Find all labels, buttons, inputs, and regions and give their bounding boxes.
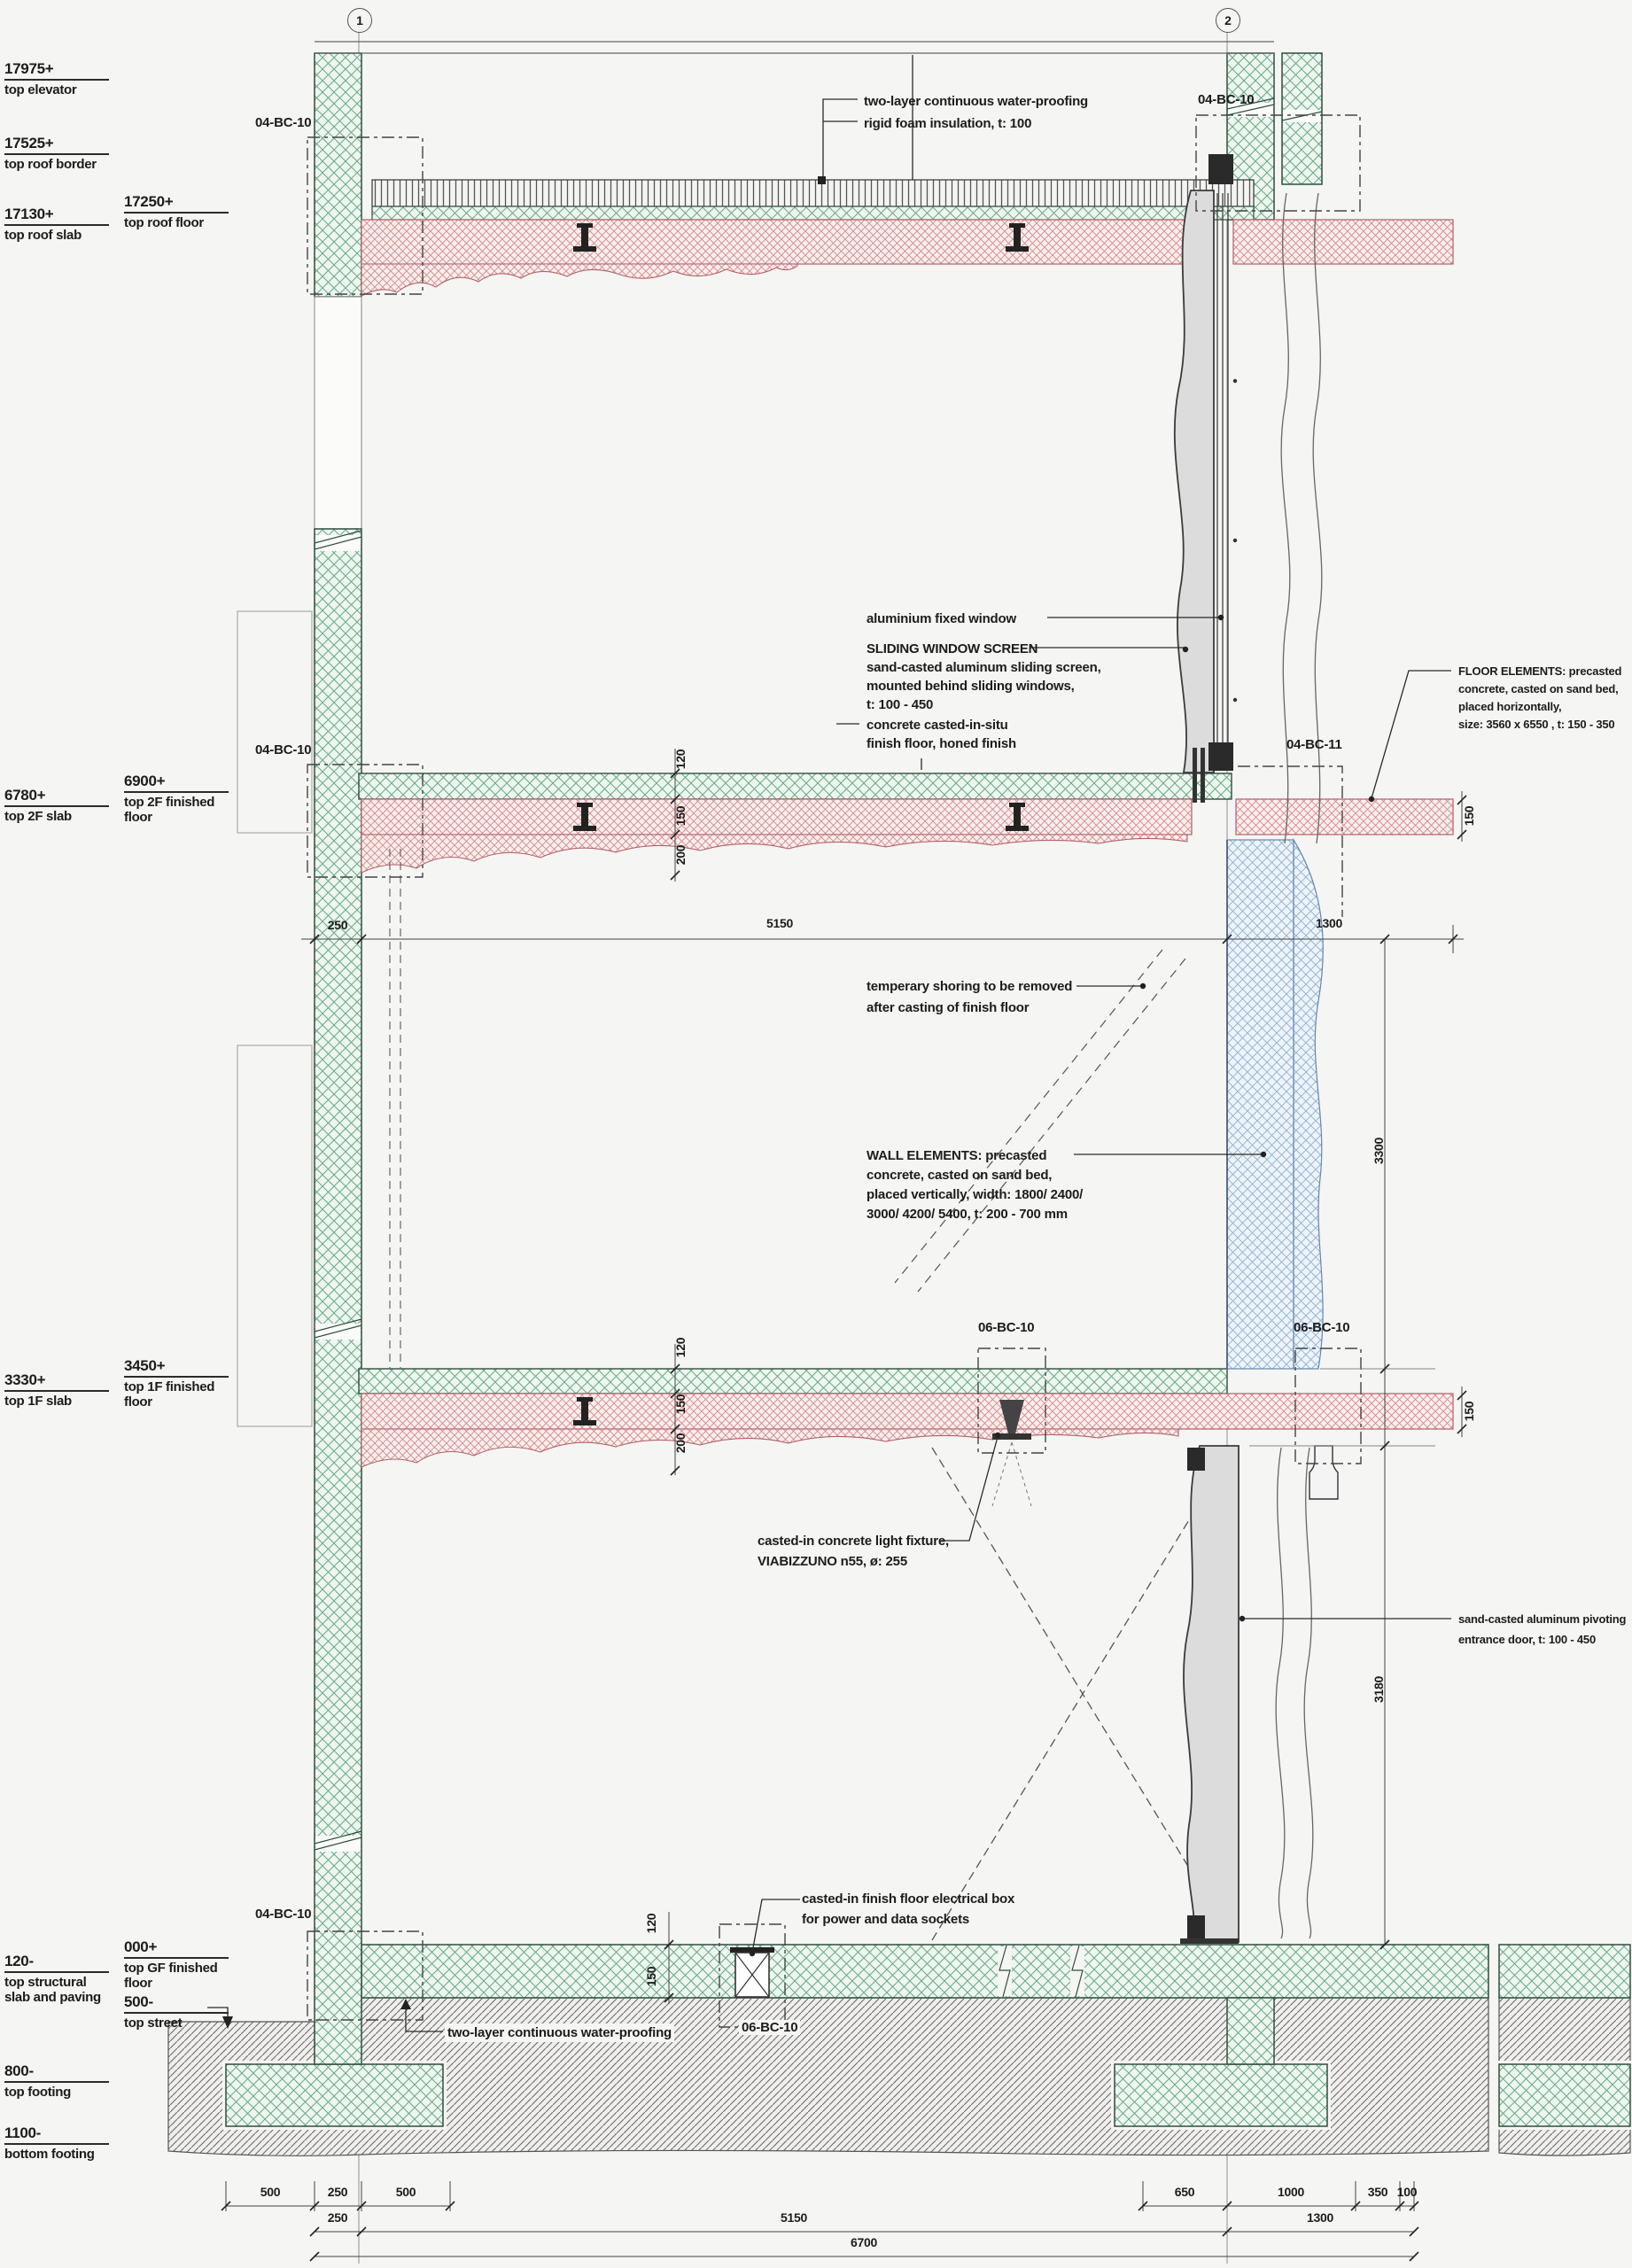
dim-1300-bottom: 1300 (1294, 2210, 1347, 2225)
level-bottom-footing: 1100-bottom footing (4, 2124, 111, 2162)
elevator-roof-lines (315, 42, 1274, 53)
annotation-wall-elements: WALL ELEMENTS: precasted concrete, caste… (867, 1146, 1083, 1224)
dim-5150-bottom: 5150 (767, 2210, 820, 2225)
dim-500-footing-left: 500 (244, 2185, 297, 2199)
shoring-and-outlines (237, 611, 1185, 1426)
dim-150-1f-edge: 150 (1462, 1391, 1476, 1432)
dim-3180-storey: 3180 (1372, 1669, 1386, 1710)
grid-bubble-1: 1 (347, 8, 372, 33)
level-top-2f-slab: 6780+top 2F slab (4, 787, 111, 824)
level-top-elevator: 17975+top elevator (4, 60, 111, 97)
columns (315, 53, 1322, 2064)
detail-ref-06-bc-10-1f-left: 06-BC-10 (978, 1320, 1034, 1335)
fixed-window-glazing (1217, 193, 1228, 771)
dim-150-2f: 150 (673, 796, 688, 836)
level-top-gf-finished: 000+top GF finished floor (124, 1938, 230, 1991)
dim-3300-storey: 3300 (1372, 1130, 1386, 1171)
level-top-roof-floor: 17250+top roof floor (124, 193, 230, 230)
dim-150-1f: 150 (673, 1384, 688, 1425)
level-top-2f-finished: 6900+top 2F finished floor (124, 773, 230, 825)
door-top-pivot (1187, 1448, 1205, 1471)
level-top-roof-border: 17525+top roof border (4, 135, 111, 172)
level-top-footing: 800-top footing (4, 2062, 111, 2100)
dim-250-bottom2: 250 (311, 2210, 364, 2225)
grid-lines (359, 31, 1227, 2264)
dim-650-bottom: 650 (1158, 2185, 1211, 2199)
dim-150-2f-edge: 150 (1462, 796, 1476, 836)
annotation-temporary-shoring: temperary shoring to be removed after ca… (867, 976, 1072, 1019)
level-top-1f-finished: 3450+top 1F finished floor (124, 1357, 230, 1410)
window-sill-fixing (1208, 742, 1233, 771)
dim-6700-bottom: 6700 (837, 2235, 890, 2249)
dim-1000-bottom: 1000 (1264, 2185, 1317, 2199)
roof-slab (361, 180, 1453, 296)
dim-500-footing-right: 500 (379, 2185, 432, 2199)
dim-120-gf: 120 (644, 1903, 658, 1944)
dim-1300-mid: 1300 (1302, 916, 1356, 930)
annotation-light-fixture: casted-in concrete light fixture, VIABIZ… (758, 1531, 949, 1572)
annotation-floor-elements: FLOOR ELEMENTS: precasted concrete, cast… (1458, 663, 1621, 734)
dim-250-mid: 250 (311, 918, 364, 932)
annotation-fixed-window: aluminium fixed window (867, 610, 1016, 628)
detail-ref-04-bc-10-gf: 04-BC-10 (255, 1907, 311, 1922)
door-bottom-pivot (1187, 1915, 1205, 1938)
dim-100-bottom: 100 (1380, 2185, 1434, 2199)
dim-150-gf: 150 (644, 1956, 658, 1997)
detail-ref-04-bc-10-roof-right: 04-BC-10 (1198, 92, 1254, 107)
dim-5150-mid: 5150 (753, 916, 806, 930)
annotation-sliding-window-screen: SLIDING WINDOW SCREEN sand-casted alumin… (867, 640, 1101, 714)
grid-bubbles (359, 8, 1227, 31)
dim-250-footing: 250 (311, 2185, 364, 2199)
dim-200-1f: 200 (673, 1423, 688, 1464)
level-top-street: 500-top street (124, 1993, 230, 2031)
annotation-entrance-door: sand-casted aluminum pivoting entrance d… (1458, 1609, 1626, 1650)
detail-ref-06-bc-10-gf: 06-BC-10 (739, 2020, 800, 2035)
level-top-roof-slab: 17130+top roof slab (4, 206, 111, 243)
detail-ref-04-bc-10-2f: 04-BC-10 (255, 742, 311, 757)
section-drawing-sheet: 1 2 17975+top elevator 17525+top roof bo… (0, 0, 1632, 2268)
detail-ref-06-bc-10-1f-right: 06-BC-10 (1294, 1320, 1349, 1335)
entrance-door-panel (932, 1446, 1313, 1944)
annotation-electrical-box: casted-in finish floor electrical box fo… (802, 1889, 1014, 1930)
gf-slab (361, 1945, 1630, 1998)
dim-200-2f: 200 (673, 835, 688, 875)
annotation-gf-waterproofing: two-layer continuous water-proofing (445, 2023, 674, 2042)
grid-bubble-2: 2 (1216, 8, 1240, 33)
level-top-structural: 120-top structural slab and paving (4, 1953, 111, 2005)
recessed-fixture (1309, 1446, 1338, 1499)
annotation-roof-waterproofing: two-layer continuous water-proofing rigi… (864, 90, 1088, 135)
detail-ref-04-bc-11: 04-BC-11 (1286, 737, 1342, 752)
level-top-1f-slab: 3330+top 1F slab (4, 1371, 111, 1409)
annotation-insitu-floor: concrete casted-in-situ finish floor, ho… (867, 716, 1016, 753)
dim-120-2f: 120 (673, 739, 688, 780)
detail-ref-04-bc-10-roof-left: 04-BC-10 (255, 115, 311, 130)
door-threshold (1180, 1938, 1239, 1944)
first-floor-slab (359, 1369, 1453, 1467)
window-head-fixing (1208, 154, 1233, 184)
dim-120-1f: 120 (673, 1327, 688, 1368)
